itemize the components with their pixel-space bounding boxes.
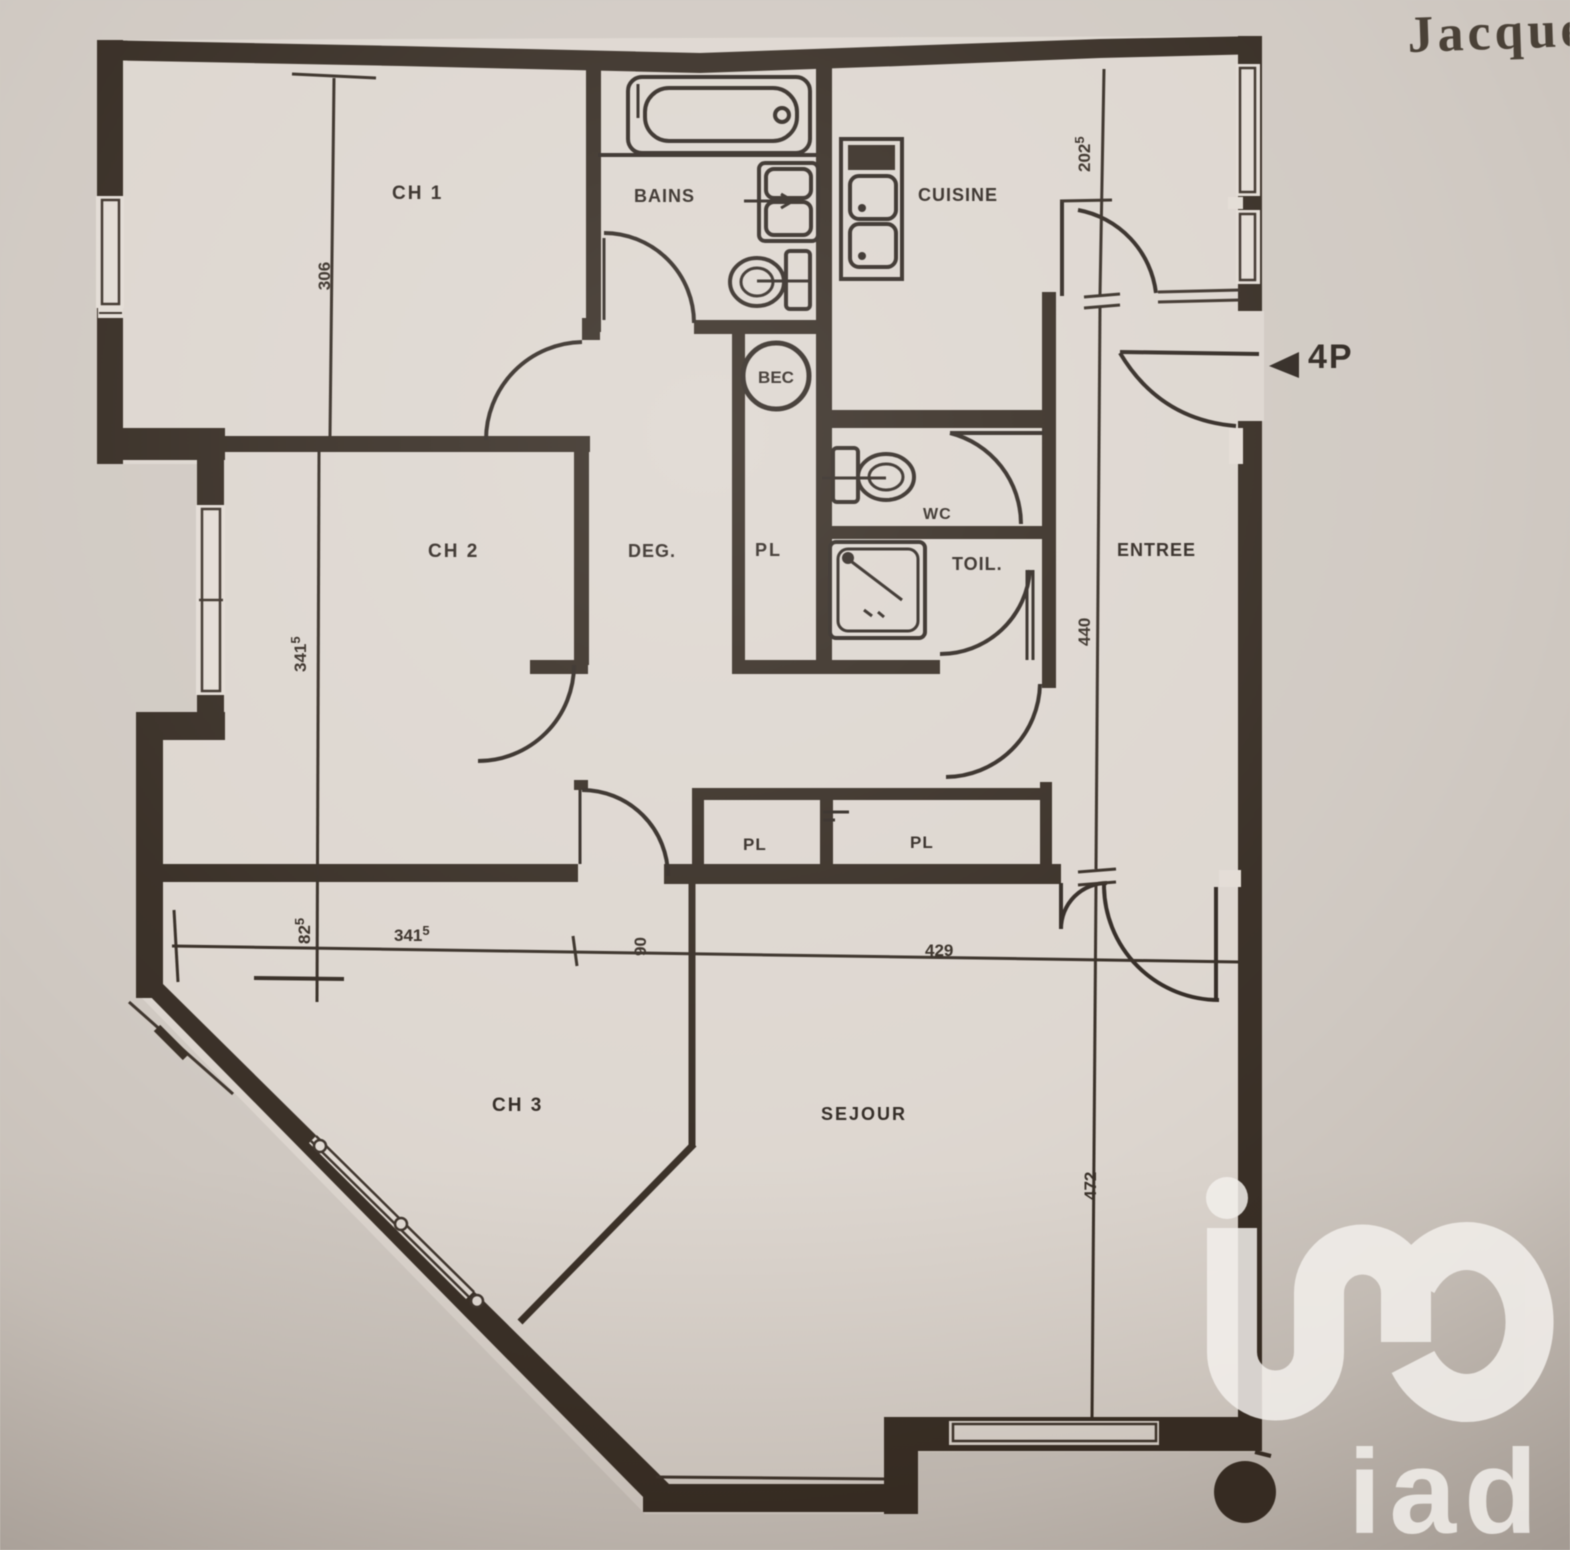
svg-text:iad: iad <box>1348 1425 1545 1550</box>
svg-text:Jacque: Jacque <box>1406 1 1570 64</box>
